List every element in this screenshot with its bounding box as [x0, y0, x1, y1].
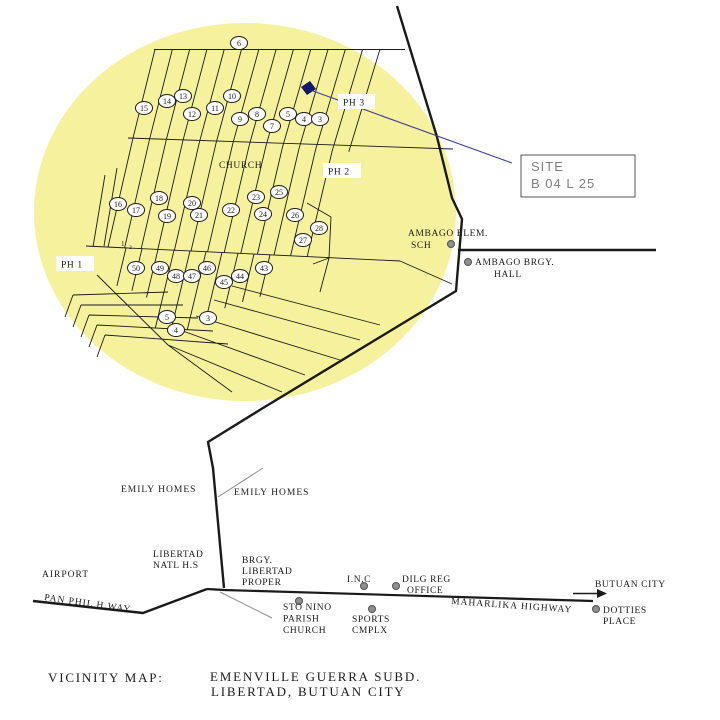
svg-text:B 04 L 25: B 04 L 25 [531, 176, 595, 191]
lot-number: 15 [140, 104, 148, 113]
lot-number: 28 [315, 224, 323, 233]
svg-text:PARISH: PARISH [283, 615, 320, 625]
lot-marker: 5 [280, 108, 297, 121]
sto-nino-leader-line [220, 592, 272, 618]
lot-marker: 5 [159, 311, 176, 324]
dilg-label: DILG REG OFFICE [402, 575, 451, 596]
svg-text:PH 3: PH 3 [343, 99, 365, 109]
brgy-libertad-proper-label: BRGY. LIBERTAD PROPER [242, 556, 292, 588]
lot-marker: 14 [159, 95, 176, 108]
svg-text:AMBAGO ELEM.: AMBAGO ELEM. [408, 229, 488, 239]
dotties-place-label: DOTTIES PLACE [603, 606, 647, 627]
svg-text:PH 1: PH 1 [61, 261, 83, 271]
lot-number: 3 [206, 314, 210, 323]
svg-text:PLACE: PLACE [603, 617, 636, 627]
lot-number: 45 [220, 278, 228, 287]
lot-number: 26 [291, 211, 299, 220]
svg-text:PROPER: PROPER [242, 578, 282, 588]
emily-homes-right-label: EMILY HOMES [234, 488, 309, 498]
lot-marker: 17 [128, 204, 145, 217]
svg-text:AMBAGO BRGY.: AMBAGO BRGY. [475, 258, 554, 268]
lot-marker: 22 [223, 204, 240, 217]
lot-number: 44 [236, 272, 244, 281]
lot-marker: 47 [184, 270, 201, 283]
svg-text:LIBERTAD: LIBERTAD [153, 550, 203, 560]
lot-number: 3 [318, 115, 322, 124]
inc-label: I.N.C [347, 575, 371, 585]
caption-title: VICINITY MAP: [48, 670, 164, 685]
lot-marker: 24 [255, 208, 272, 221]
dilg-dot [393, 583, 400, 590]
svg-text:LIBERTAD: LIBERTAD [242, 567, 292, 577]
corner-note-1: 1 [121, 240, 125, 248]
svg-text:DOTTIES: DOTTIES [603, 606, 647, 616]
lot-marker: 6 [231, 37, 248, 50]
lot-marker: 10 [224, 90, 241, 103]
lot-marker: 26 [287, 209, 304, 222]
lot-number: 16 [114, 200, 122, 209]
lot-number: 49 [156, 264, 164, 273]
lot-number: 19 [163, 212, 171, 221]
lot-marker: 28 [311, 222, 328, 235]
vicinity-map: PH 3 PH 2 PH 1 CHURCH 1 2 61514131211109… [0, 0, 720, 720]
svg-text:CHURCH: CHURCH [283, 626, 326, 636]
svg-text:CMPLX: CMPLX [352, 626, 388, 636]
lot-marker: 45 [216, 276, 233, 289]
lot-marker: 3 [200, 312, 217, 325]
airport-label: AIRPORT [42, 570, 89, 580]
lot-number: 20 [188, 199, 196, 208]
lot-number: 10 [228, 92, 236, 101]
lot-number: 11 [211, 104, 219, 113]
lot-number: 25 [275, 188, 283, 197]
lot-marker: 4 [296, 113, 313, 126]
lot-marker: 9 [232, 113, 249, 126]
phase-label-ph1: PH 1 [56, 256, 94, 271]
lot-marker: 21 [191, 209, 208, 222]
svg-text:SPORTS: SPORTS [352, 615, 390, 625]
site-callout-box: SITE B 04 L 25 [521, 155, 635, 197]
lot-number: 23 [252, 193, 260, 202]
lot-number: 17 [132, 206, 140, 215]
libertad-natl-hs-label: LIBERTAD NATL H.S [153, 550, 203, 571]
corner-note-2: 2 [129, 245, 132, 251]
lot-marker: 46 [199, 262, 216, 275]
svg-text:PH 2: PH 2 [328, 168, 350, 178]
lot-marker: 16 [110, 198, 127, 211]
lot-marker: 15 [136, 102, 153, 115]
dotties-dot [593, 606, 600, 613]
phase-label-ph2: PH 2 [323, 163, 361, 178]
lot-number: 27 [299, 236, 307, 245]
lot-marker: 43 [256, 262, 273, 275]
svg-text:BRGY.: BRGY. [242, 556, 273, 566]
lot-number: 7 [270, 122, 274, 131]
maharlika-highway-road [207, 589, 593, 601]
lot-marker: 48 [168, 270, 185, 283]
lot-marker: 18 [151, 192, 168, 205]
lot-marker: 23 [248, 191, 265, 204]
lot-number: 4 [174, 326, 178, 335]
lot-number: 13 [179, 92, 187, 101]
lot-number: 12 [188, 110, 196, 119]
svg-text:HALL: HALL [494, 270, 522, 280]
sports-cmplx-label: SPORTS CMPLX [352, 615, 390, 636]
emily-homes-left-label: EMILY HOMES [121, 485, 196, 495]
lot-marker: 8 [249, 108, 266, 121]
lot-number: 21 [195, 211, 203, 220]
lot-marker: 20 [184, 197, 201, 210]
lot-marker: 25 [271, 186, 288, 199]
lot-number: 4 [302, 115, 306, 124]
lot-marker: 4 [168, 324, 185, 337]
lot-number: 5 [286, 110, 290, 119]
svg-text:STO NINO: STO NINO [283, 603, 332, 613]
lot-marker: 7 [264, 120, 281, 133]
lot-marker: 13 [175, 90, 192, 103]
lot-marker: 3 [312, 113, 329, 126]
lot-number: 24 [259, 210, 267, 219]
sto-nino-label: STO NINO PARISH CHURCH [283, 603, 332, 636]
lot-marker: 27 [295, 234, 312, 247]
lot-marker: 12 [184, 108, 201, 121]
lot-marker: 19 [159, 210, 176, 223]
svg-text:NATL H.S: NATL H.S [153, 561, 199, 571]
svg-text:SCH: SCH [411, 241, 431, 251]
lot-marker: 49 [152, 262, 169, 275]
pan-phil-highway-label: PAN PHIL H.WAY [44, 593, 132, 615]
lot-number: 18 [155, 194, 163, 203]
svg-text:OFFICE: OFFICE [407, 586, 443, 596]
church-area-label: CHURCH [219, 161, 262, 171]
lot-number: 46 [203, 264, 211, 273]
ambago-brgy-dot [465, 259, 472, 266]
lot-number: 47 [188, 272, 196, 281]
lot-number: 50 [132, 264, 140, 273]
lot-number: 6 [237, 39, 241, 48]
butuan-city-label: BUTUAN CITY [595, 580, 666, 590]
lot-number: 22 [227, 206, 235, 215]
lot-marker: 44 [232, 270, 249, 283]
highlight-circle [34, 23, 456, 401]
caption-city: LIBERTAD, BUTUAN CITY [211, 684, 406, 699]
lot-number: 5 [165, 313, 169, 322]
svg-text:SITE: SITE [531, 159, 564, 174]
ambago-elem-dot [448, 241, 455, 248]
lot-number: 14 [163, 97, 171, 106]
map-canvas: PH 3 PH 2 PH 1 CHURCH 1 2 61514131211109… [0, 0, 720, 720]
lot-number: 43 [260, 264, 268, 273]
lot-number: 9 [238, 115, 242, 124]
sports-dot [369, 606, 376, 613]
lot-marker: 11 [207, 102, 224, 115]
svg-text:DILG REG: DILG REG [402, 575, 451, 585]
lot-number: 48 [172, 272, 180, 281]
caption-subdivision: EMENVILLE GUERRA SUBD. [210, 669, 421, 684]
lot-number: 8 [255, 110, 259, 119]
ambago-brgy-label: AMBAGO BRGY. HALL [475, 258, 554, 280]
phase-label-ph3: PH 3 [338, 94, 375, 109]
butuan-direction-arrow [573, 589, 607, 598]
lot-marker: 50 [128, 262, 145, 275]
